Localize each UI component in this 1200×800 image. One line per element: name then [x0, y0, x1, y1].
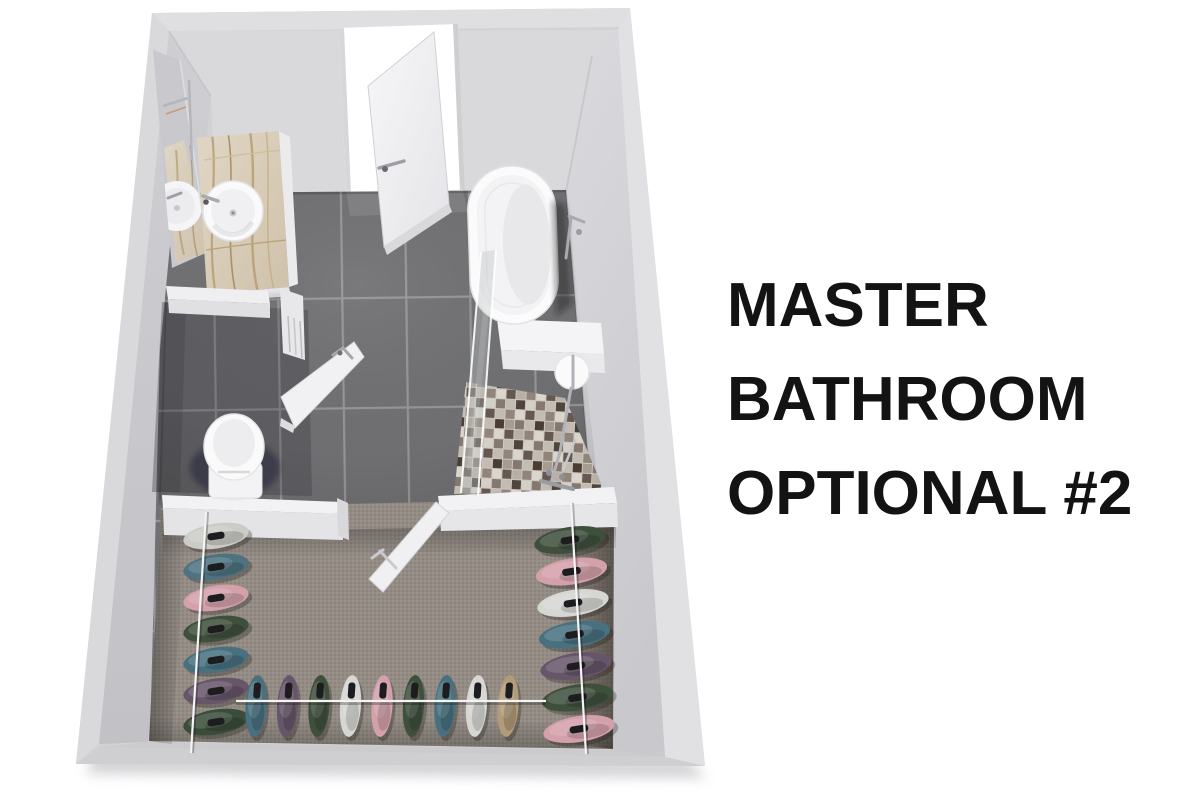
closet-doorway-jamb — [337, 498, 349, 540]
vanity-sink — [203, 181, 263, 241]
clothes-rack-bottom — [243, 674, 524, 742]
tub-half-wall — [497, 319, 605, 373]
plan-title-line-2: BATHROOM — [727, 353, 1132, 447]
plan-title-line-3: OPTIONAL #2 — [727, 447, 1132, 541]
plan-title-line-1: MASTER — [727, 259, 1132, 353]
floorplan-image: MASTER BATHROOM OPTIONAL #2 — [0, 0, 1200, 800]
plan-title: MASTER BATHROOM OPTIONAL #2 — [727, 259, 1132, 541]
